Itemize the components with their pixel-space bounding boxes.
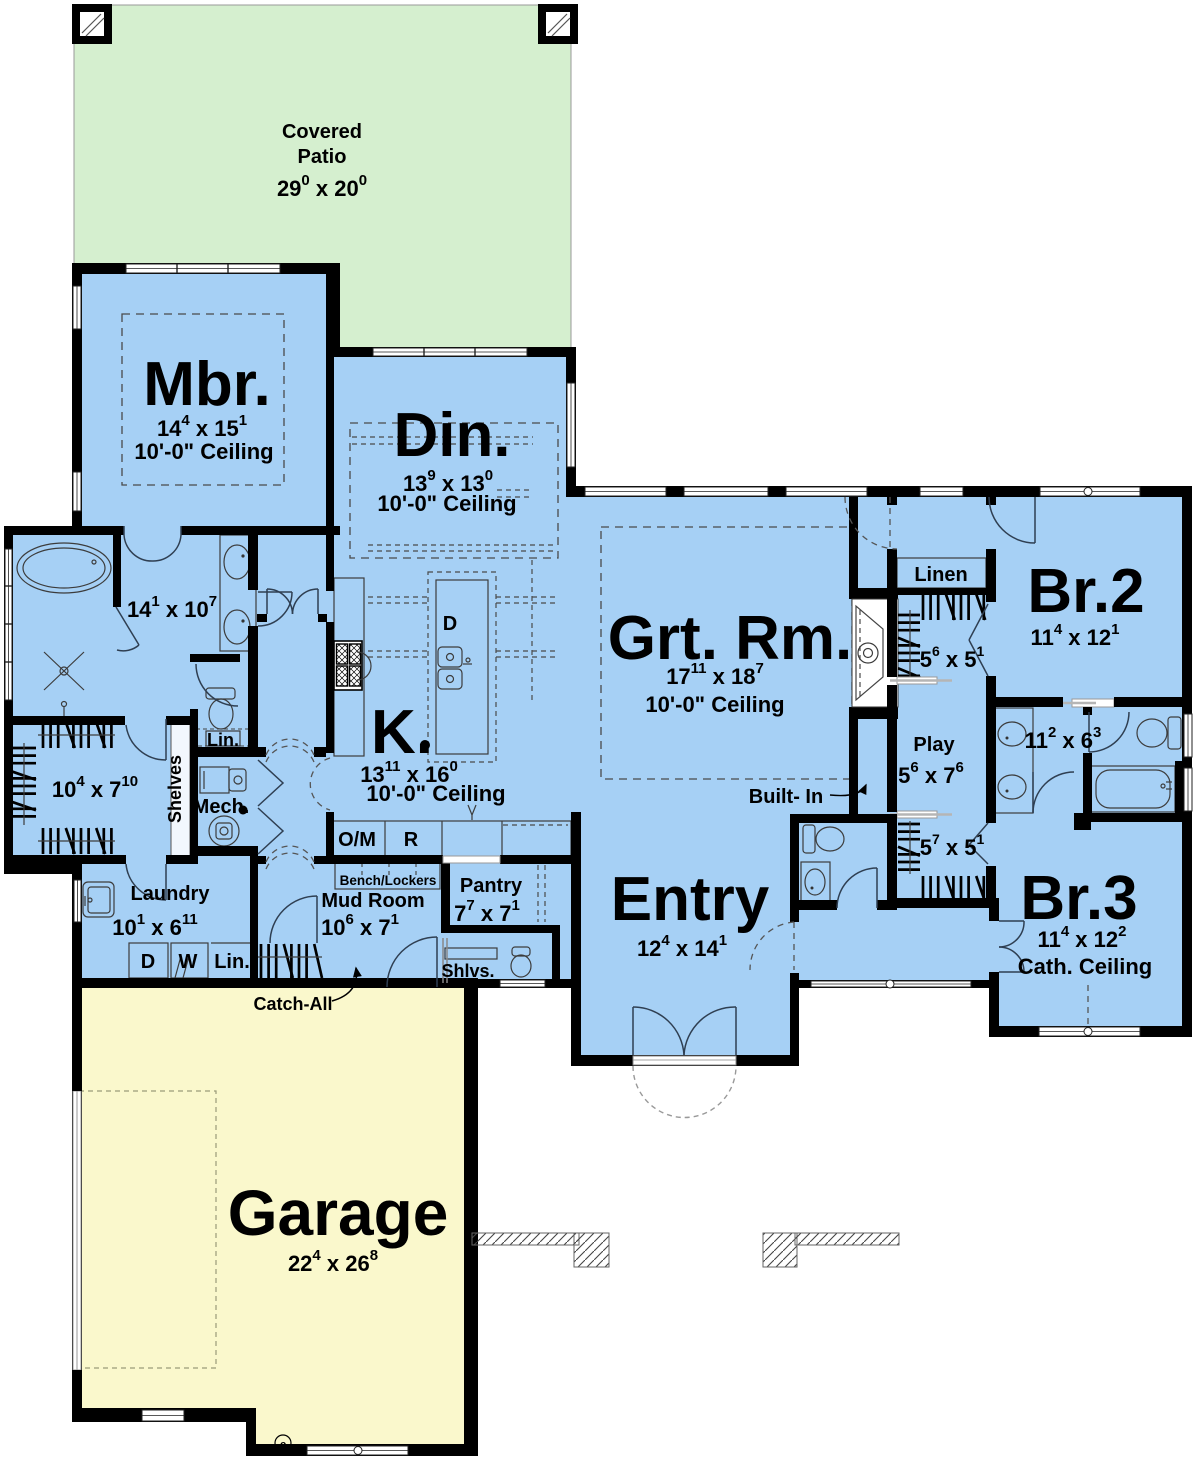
svg-text:c: c — [280, 1439, 286, 1451]
svg-text:Mbr.: Mbr. — [143, 350, 270, 419]
svg-text:224 x 268: 224 x 268 — [288, 1247, 378, 1276]
svg-text:1711 x 187: 1711 x 187 — [666, 660, 764, 689]
svg-text:D: D — [443, 613, 457, 635]
svg-text:10'-0" Ceiling: 10'-0" Ceiling — [366, 781, 505, 806]
svg-text:56 x 76: 56 x 76 — [898, 759, 964, 788]
svg-text:W: W — [179, 951, 198, 973]
svg-text:Shlvs.: Shlvs. — [441, 961, 494, 981]
svg-text:Laundry: Laundry — [131, 883, 211, 905]
svg-text:290 x 200: 290 x 200 — [277, 172, 367, 201]
svg-text:Pantry: Pantry — [460, 875, 523, 897]
svg-text:106 x 71: 106 x 71 — [321, 911, 399, 940]
svg-text:114 x 121: 114 x 121 — [1031, 621, 1120, 650]
svg-text:Cath. Ceiling: Cath. Ceiling — [1018, 954, 1152, 979]
svg-text:Built- In: Built- In — [749, 786, 823, 808]
svg-text:Grt. Rm.: Grt. Rm. — [608, 604, 853, 673]
svg-text:Mud Room: Mud Room — [321, 890, 424, 912]
svg-text:Lin.: Lin. — [214, 951, 250, 973]
svg-text:Br.2: Br.2 — [1027, 557, 1144, 626]
svg-text:Garage: Garage — [228, 1177, 449, 1249]
svg-text:144 x 151: 144 x 151 — [157, 412, 247, 441]
svg-text:10'-0" Ceiling: 10'-0" Ceiling — [645, 692, 784, 717]
svg-text:Patio: Patio — [298, 146, 347, 168]
svg-text:141 x 107: 141 x 107 — [127, 593, 217, 622]
svg-text:Catch-All: Catch-All — [253, 994, 332, 1014]
svg-text:R: R — [404, 829, 419, 851]
svg-text:56 x 51: 56 x 51 — [920, 643, 985, 672]
svg-text:Bench/Lockers: Bench/Lockers — [340, 873, 437, 888]
svg-text:77 x 71: 77 x 71 — [454, 897, 520, 926]
svg-text:D: D — [141, 951, 155, 973]
svg-text:Covered: Covered — [282, 121, 362, 143]
svg-text:Lin.: Lin. — [207, 730, 239, 750]
svg-text:112 x 63: 112 x 63 — [1025, 724, 1102, 753]
svg-text:Linen: Linen — [914, 564, 967, 586]
svg-text:114 x 122: 114 x 122 — [1038, 923, 1127, 952]
svg-text:K.: K. — [371, 698, 433, 767]
svg-text:Mech.: Mech. — [193, 796, 250, 818]
svg-text:O/M: O/M — [338, 829, 376, 851]
svg-text:Entry: Entry — [611, 865, 770, 934]
svg-text:10'-0" Ceiling: 10'-0" Ceiling — [134, 439, 273, 464]
svg-text:Din.: Din. — [393, 401, 510, 470]
svg-text:Shelves: Shelves — [165, 755, 185, 823]
svg-text:10'-0" Ceiling: 10'-0" Ceiling — [377, 491, 516, 516]
svg-text:Play: Play — [913, 734, 955, 756]
svg-text:57 x 51: 57 x 51 — [920, 831, 985, 860]
svg-text:124 x 141: 124 x 141 — [637, 932, 727, 961]
